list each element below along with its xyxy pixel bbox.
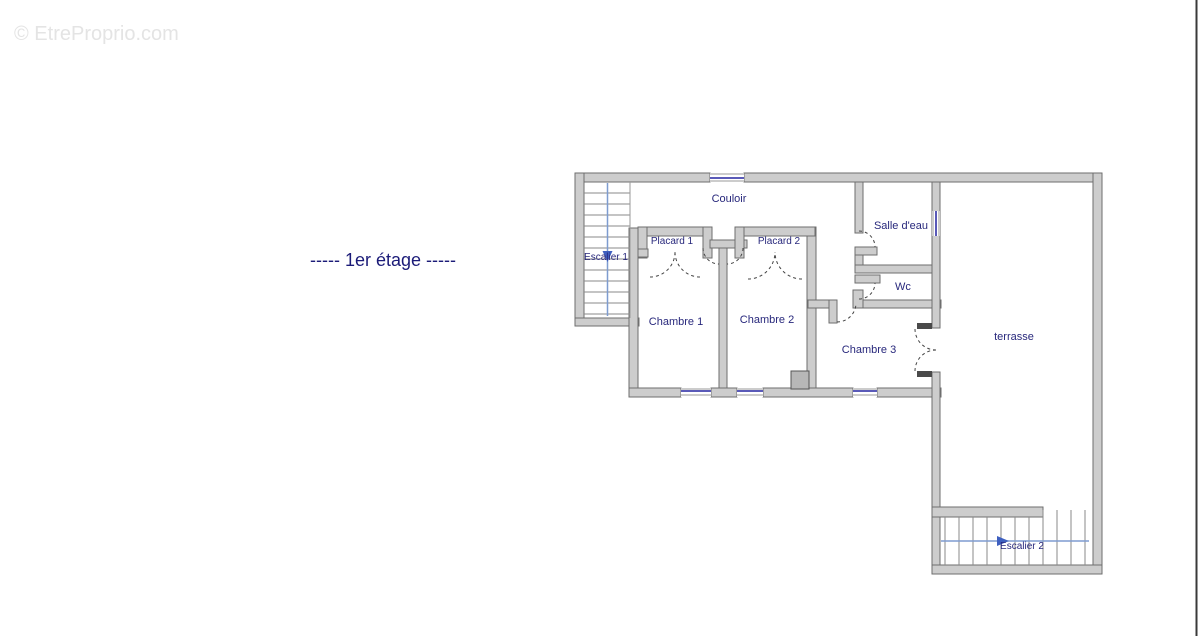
window-marker [737, 388, 763, 397]
wall-segment [855, 247, 877, 255]
window-marker [853, 388, 877, 397]
door-arc [915, 329, 936, 350]
floor-title: ----- 1er étage ----- [310, 250, 456, 270]
wall-segment [858, 300, 941, 308]
wall-segment [855, 265, 938, 273]
room-label-chambre-2: Chambre 2 [740, 314, 794, 326]
door-arc [915, 350, 936, 371]
walls [575, 173, 1102, 574]
wall-segment [575, 173, 710, 182]
door-jamb [917, 371, 932, 377]
wall-segment [638, 249, 648, 257]
wall-segment [719, 248, 727, 388]
room-label-salle-deau: Salle d'eau [874, 220, 928, 232]
wall-segment [855, 275, 880, 283]
wall-segment [877, 388, 941, 397]
room-label-placard-2: Placard 2 [758, 236, 801, 247]
room-label-terrasse: terrasse [994, 331, 1034, 343]
wall-segment [932, 182, 940, 328]
wall-segment [629, 388, 681, 397]
wall-segment [932, 507, 1043, 517]
wall-segment [855, 182, 863, 233]
duct-square [791, 371, 809, 389]
wall-segment [744, 173, 1102, 182]
floorplan-page: © EtreProprio.com ----- 1er étage ----- [0, 0, 1200, 636]
wall-segment [932, 565, 1102, 574]
window-marker [681, 388, 711, 397]
door-arc [748, 252, 775, 279]
room-label-escalier-1: Escalier 1 [584, 252, 628, 263]
window-marker [932, 211, 940, 236]
wall-segment [711, 388, 737, 397]
room-label-couloir: Couloir [712, 193, 747, 205]
door-arc [775, 252, 802, 279]
wall-segment [1093, 173, 1102, 574]
door-jamb [917, 323, 932, 329]
wall-segment [735, 227, 815, 236]
wall-segment [735, 227, 744, 258]
room-label-chambre-3: Chambre 3 [842, 344, 896, 356]
wall-segment [638, 227, 712, 236]
stairs-escalier-2 [941, 510, 1089, 565]
room-label-escalier-2: Escalier 2 [1000, 541, 1044, 552]
door-arc [675, 252, 700, 277]
room-label-wc: Wc [895, 281, 911, 293]
wall-segment [829, 300, 837, 323]
wall-segment [575, 173, 584, 326]
door-arc [650, 252, 675, 277]
window-marker [710, 173, 744, 182]
stairs-escalier-1 [584, 182, 630, 318]
floor-plan-svg: © EtreProprio.com ----- 1er étage ----- [0, 0, 1200, 636]
room-label-placard-1: Placard 1 [651, 236, 694, 247]
watermark: © EtreProprio.com [14, 23, 179, 45]
wall-segment [932, 372, 940, 565]
room-label-chambre-1: Chambre 1 [649, 316, 703, 328]
